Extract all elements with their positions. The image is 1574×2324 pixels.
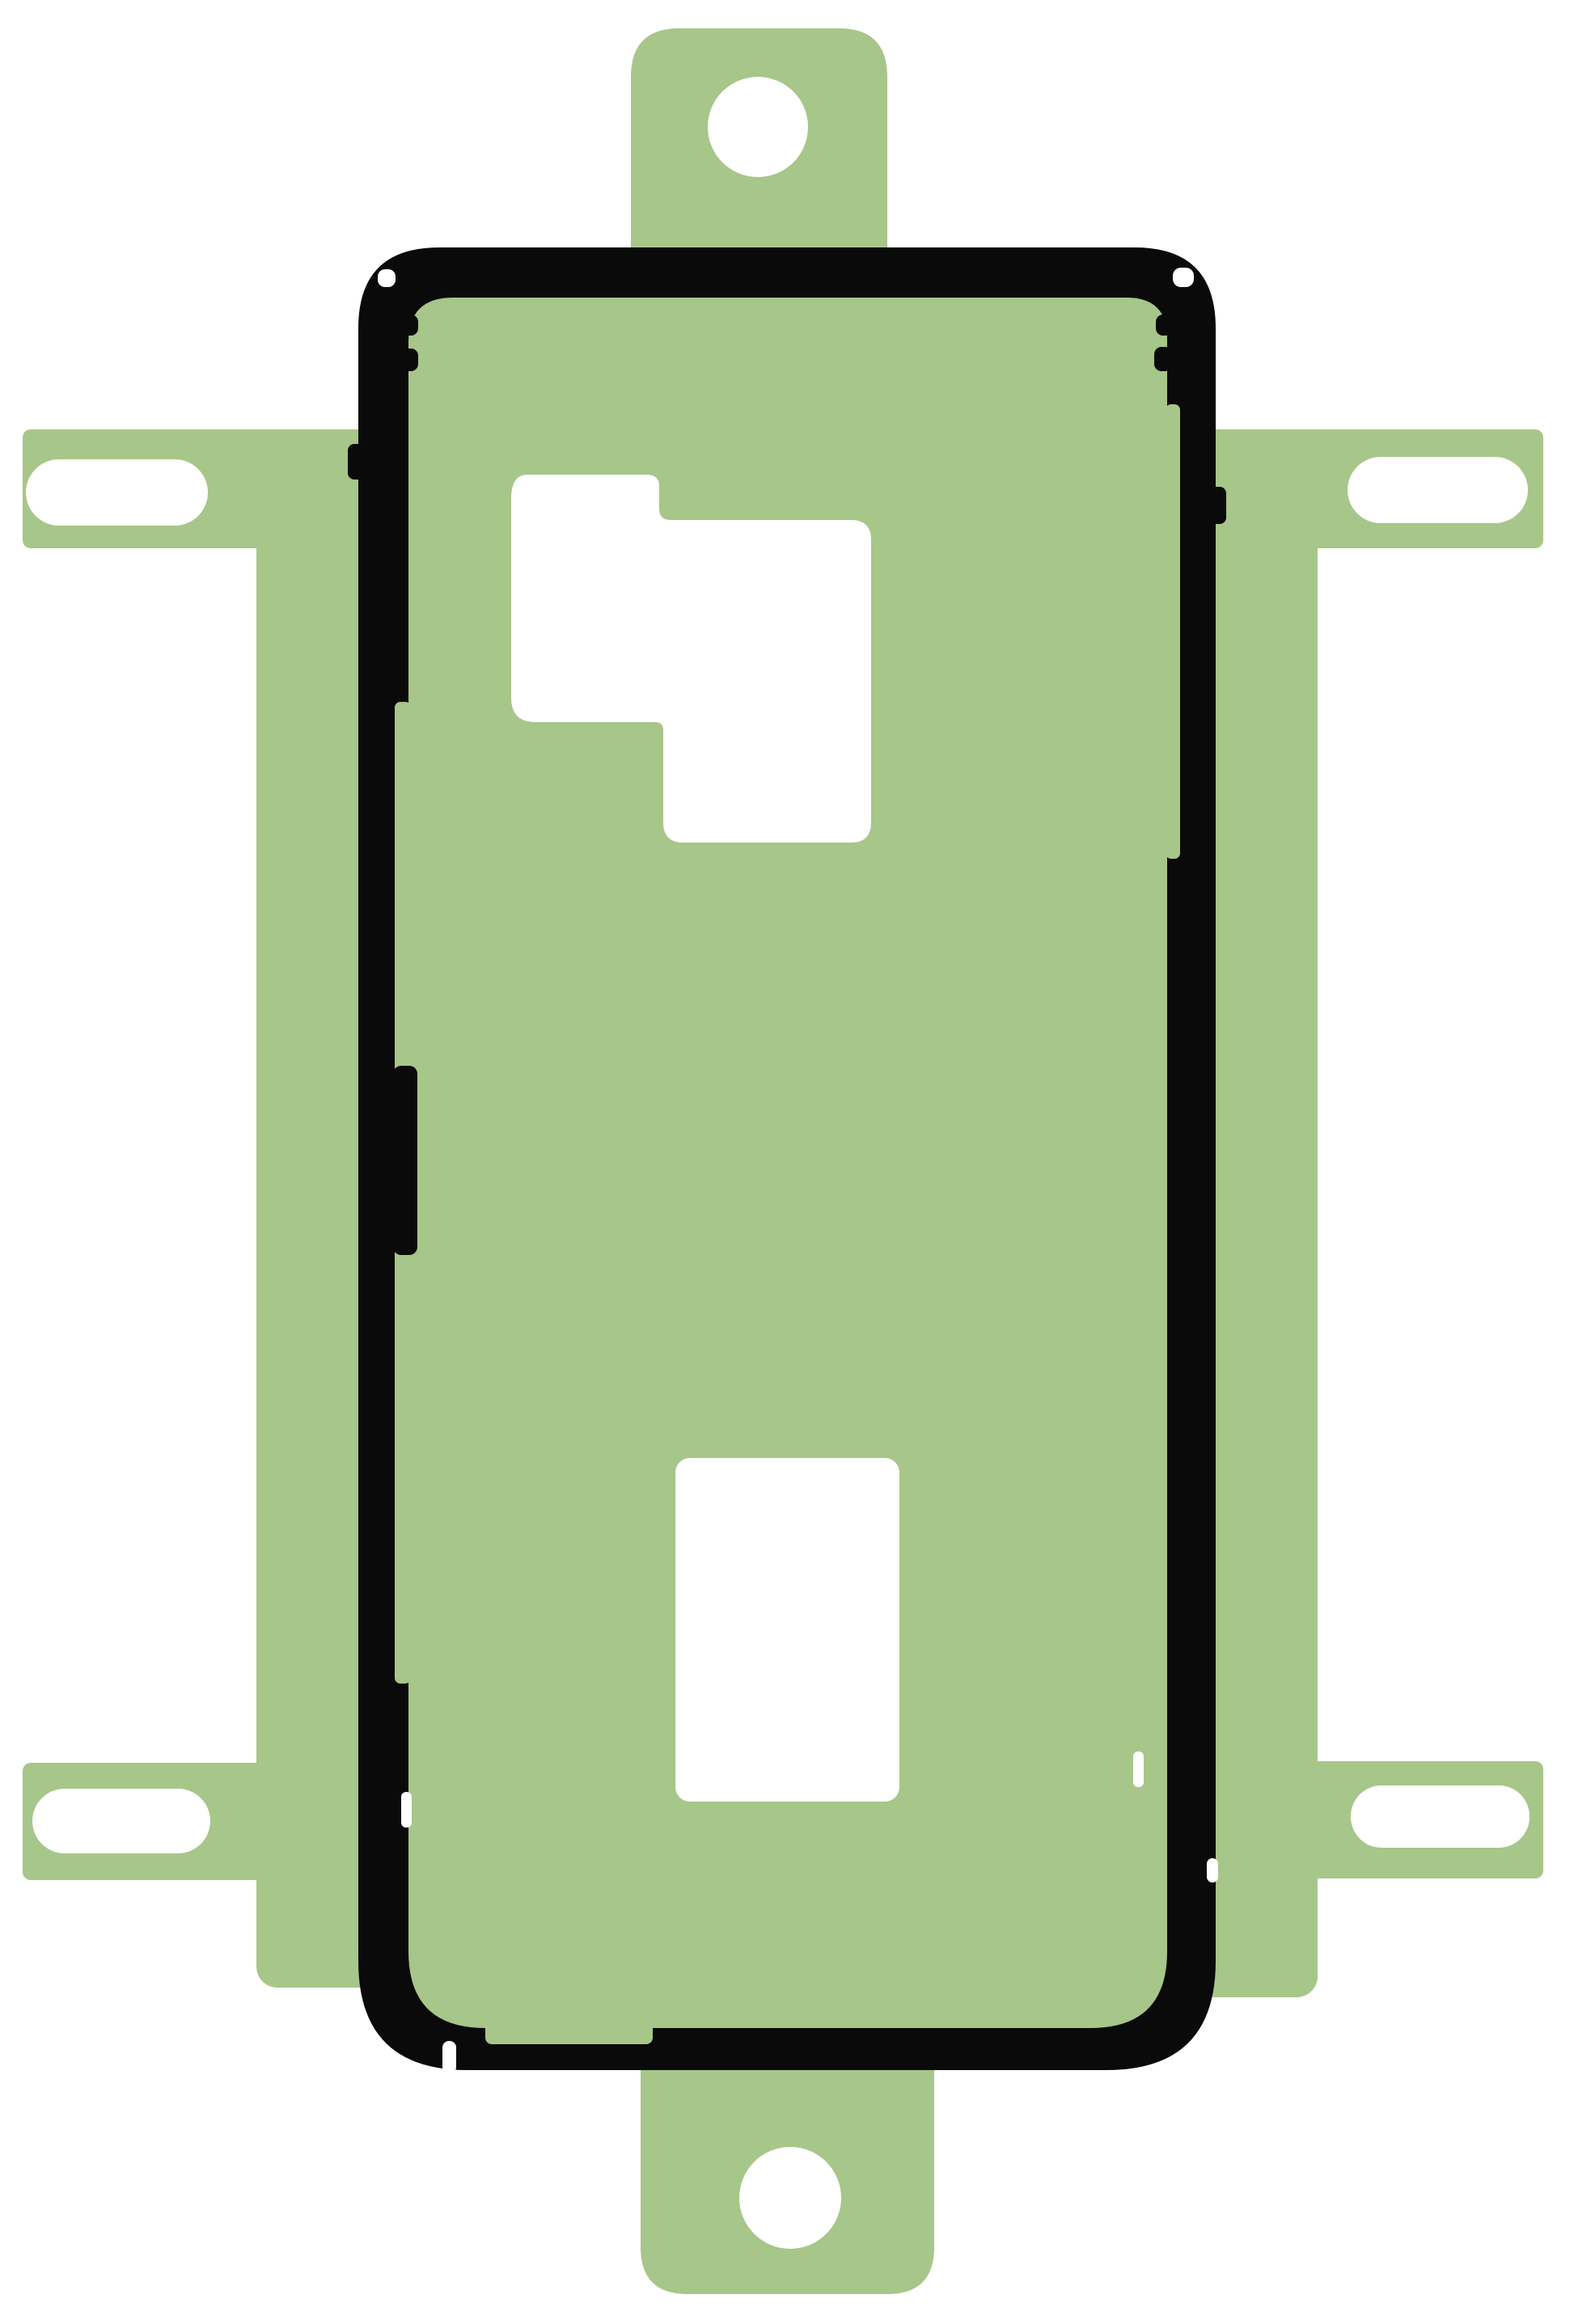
outline-outer-nub-left (348, 444, 366, 480)
bottom-tab-hole (739, 2147, 841, 2249)
left-top-rail-slot (26, 459, 208, 526)
outline-outer-nub-right (1208, 487, 1226, 524)
notch-top-left-corner (378, 269, 396, 287)
left-border-inner-bulge (393, 1066, 417, 1255)
inner-bump-left-lower (402, 349, 418, 371)
right-top-rail-slot (1348, 457, 1528, 523)
notch-left-border-inner (401, 1792, 412, 1828)
product-image-stage (0, 0, 1574, 2324)
notch-right-border-outer (1207, 1858, 1218, 1882)
notch-right-border-inner (1133, 1751, 1144, 1787)
inner-bump-right-lower (1154, 347, 1172, 371)
lower-rectangular-cutout (675, 1458, 899, 1802)
inner-bump-left-upper (402, 315, 418, 336)
right-bottom-rail-slot (1351, 1785, 1530, 1848)
right-border-thinning (1166, 404, 1180, 859)
left-bottom-rail-slot (32, 1789, 210, 1853)
interior-bottom-step (485, 2013, 653, 2044)
notch-bottom-left (442, 2041, 456, 2073)
inner-bump-right-upper (1156, 315, 1172, 336)
notch-top-right-corner (1173, 268, 1194, 287)
adhesive-liner-sheet-figure (0, 0, 1574, 2324)
top-tab-hole (708, 77, 808, 177)
